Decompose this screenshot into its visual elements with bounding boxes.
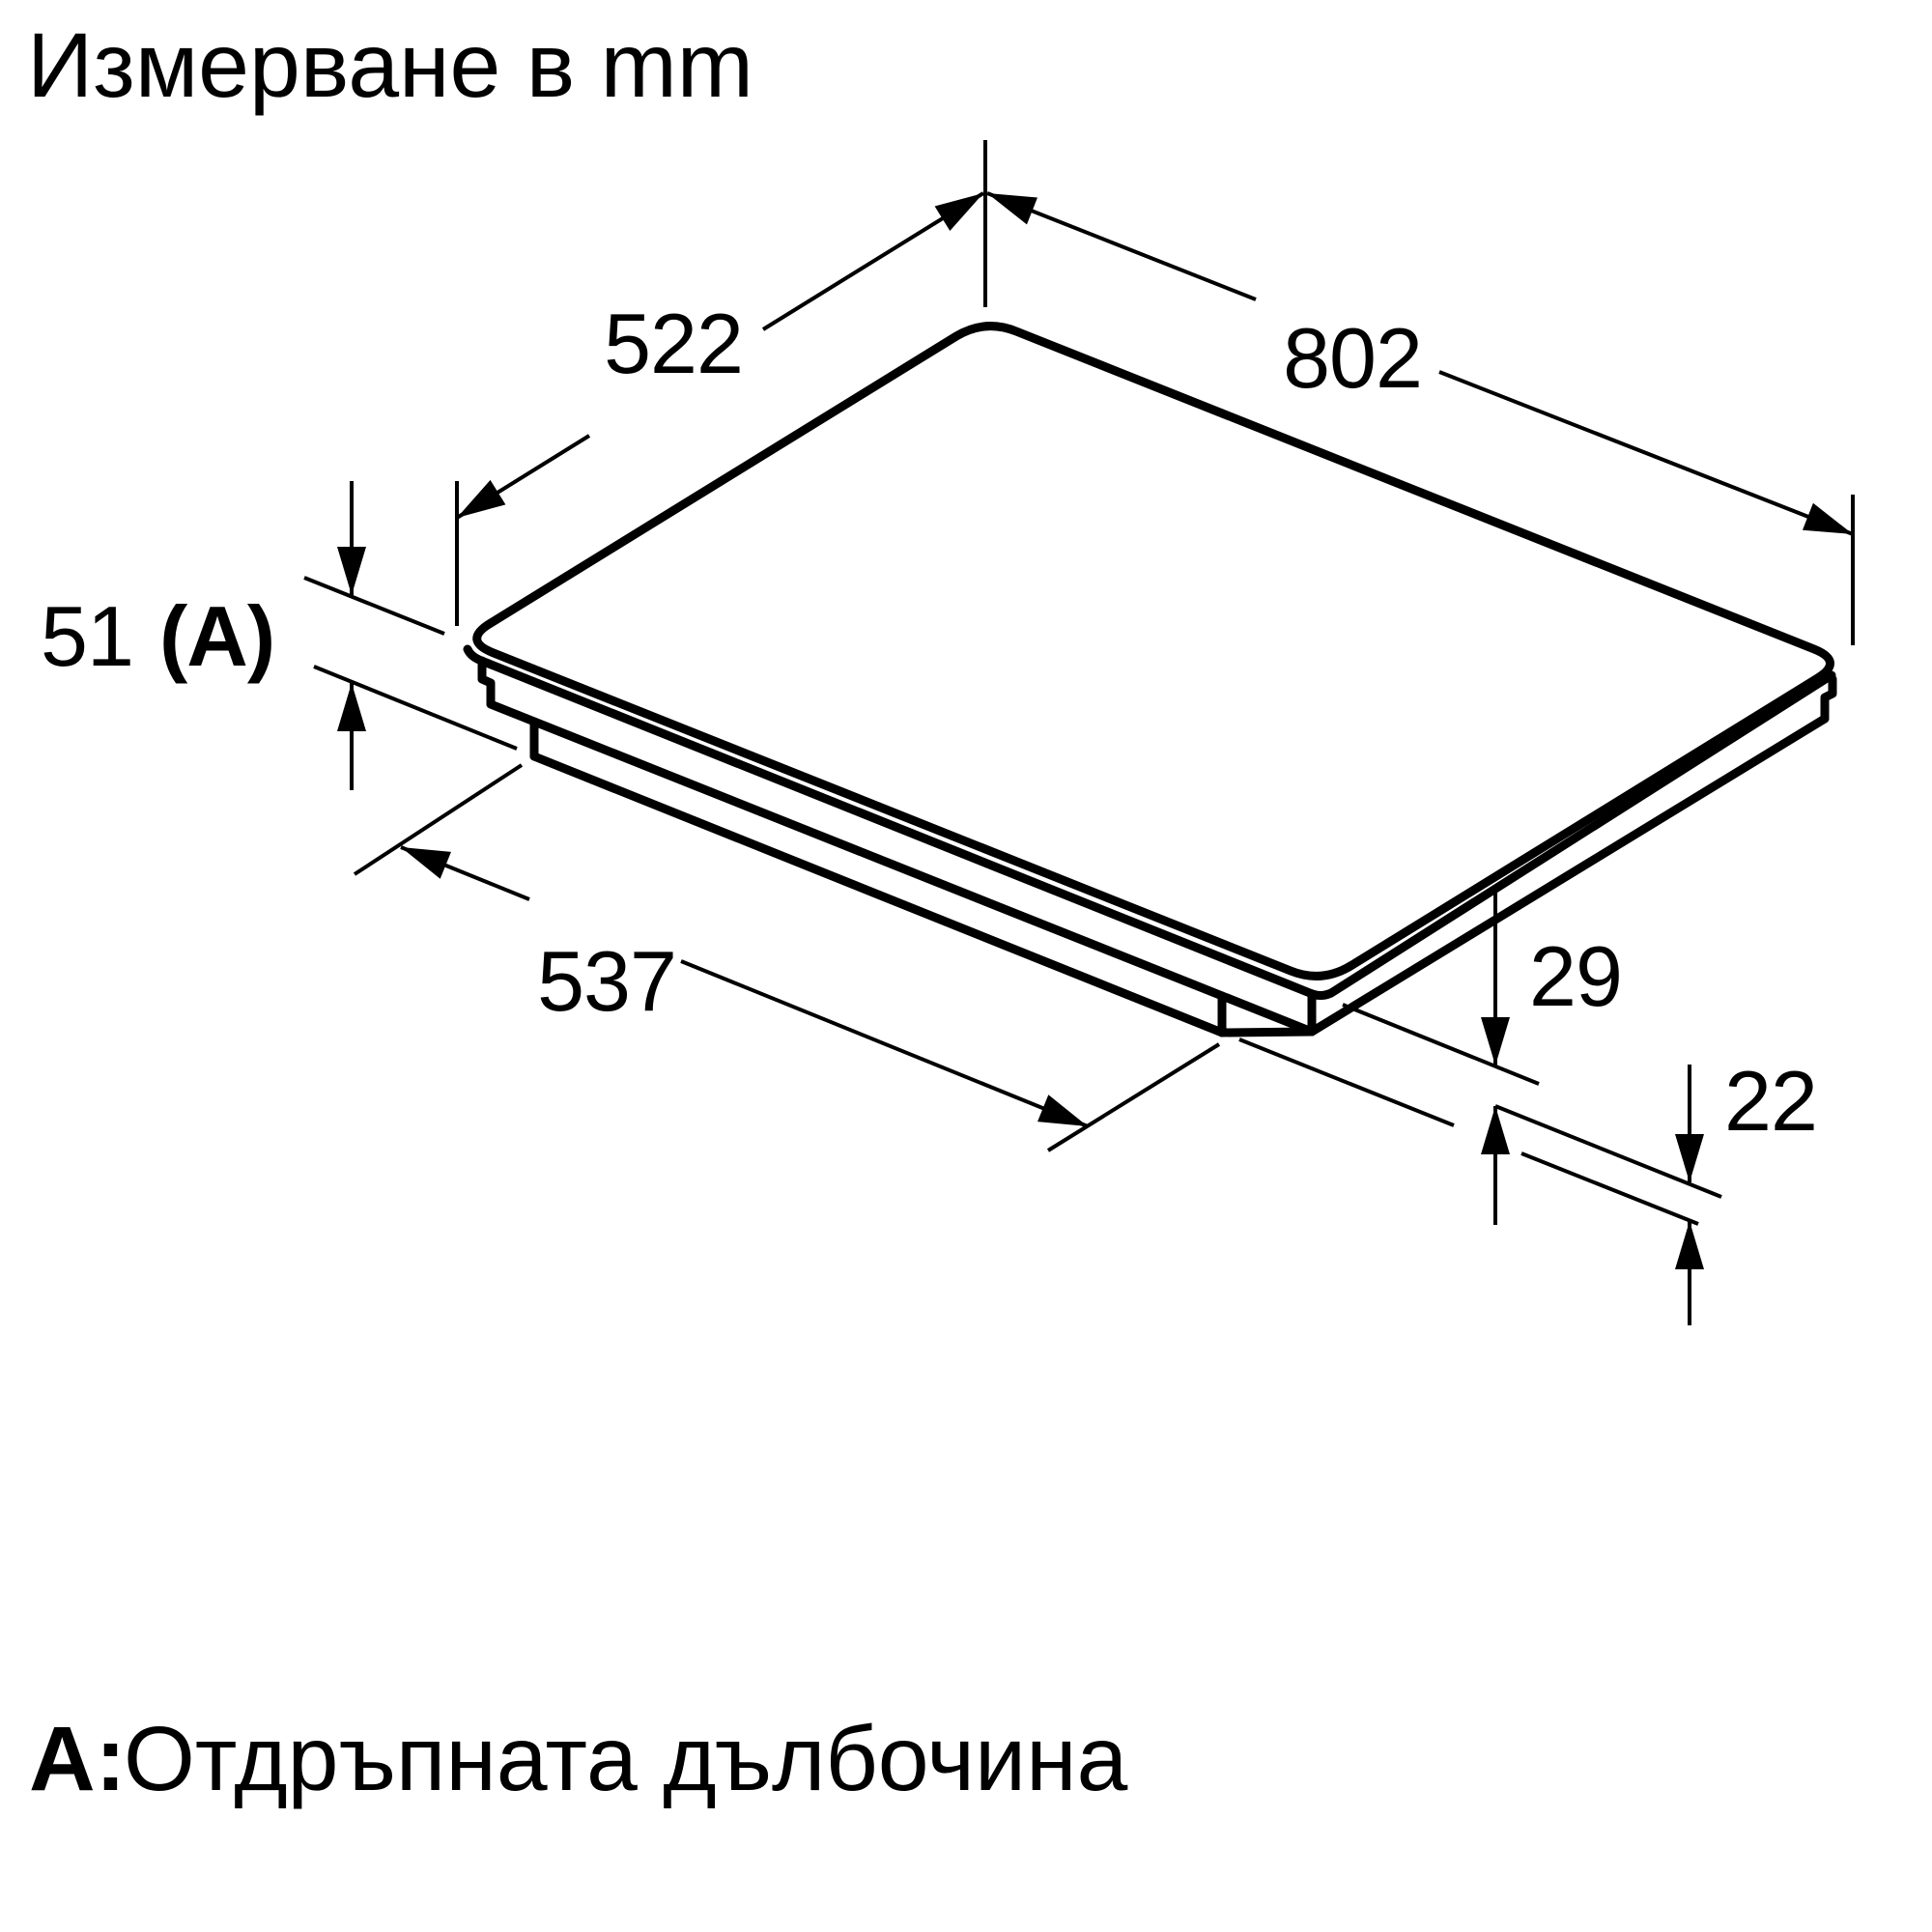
dim-label-upper-step: 29 — [1529, 928, 1622, 1024]
ref-line-glass-top-left — [304, 578, 444, 634]
dim-label-top-depth: 522 — [604, 296, 743, 391]
page-title: Измерване в mm — [27, 14, 753, 117]
footnote-text: Отдръпната дълбочина — [124, 1708, 1128, 1810]
right-step-profile — [1825, 679, 1833, 719]
dimension-diagram: Измерване в mm 522 802 51 (A) 537 29 22 … — [0, 0, 1932, 1932]
base-bottom-front-edge — [1222, 1032, 1312, 1033]
footnote-prefix: A: — [29, 1708, 126, 1810]
dim-line-802-right — [1439, 372, 1853, 534]
diagram-page: Измерване в mm 522 802 51 (A) 537 29 22 … — [0, 0, 1932, 1932]
ref-line-frame-bottom-right — [1495, 1106, 1721, 1197]
dim-label-recess-height: 51 — [41, 588, 133, 684]
dim-label-base-width: 537 — [537, 933, 676, 1029]
dim-line-537-left — [401, 847, 529, 899]
ref-line-base-bottom-right-a — [1239, 1039, 1454, 1125]
cooktop-drawing — [468, 327, 1833, 1033]
dim-line-802-left — [987, 193, 1256, 299]
dim-label-recess-ref: (A) — [159, 588, 274, 684]
dim-line-522-lower — [457, 436, 589, 518]
ext-line-base-left-corner — [355, 765, 522, 874]
ref-line-base-bottom-right-b — [1521, 1153, 1698, 1224]
dim-line-522-upper — [763, 193, 983, 329]
dim-line-537-right — [681, 961, 1088, 1126]
glass-top-surface — [477, 327, 1831, 977]
ext-line-base-front-corner — [1048, 1044, 1219, 1151]
dim-label-top-width: 802 — [1283, 310, 1422, 406]
ref-line-glass-bottom-right — [1343, 1005, 1539, 1084]
dim-label-lower-step: 22 — [1724, 1053, 1817, 1149]
